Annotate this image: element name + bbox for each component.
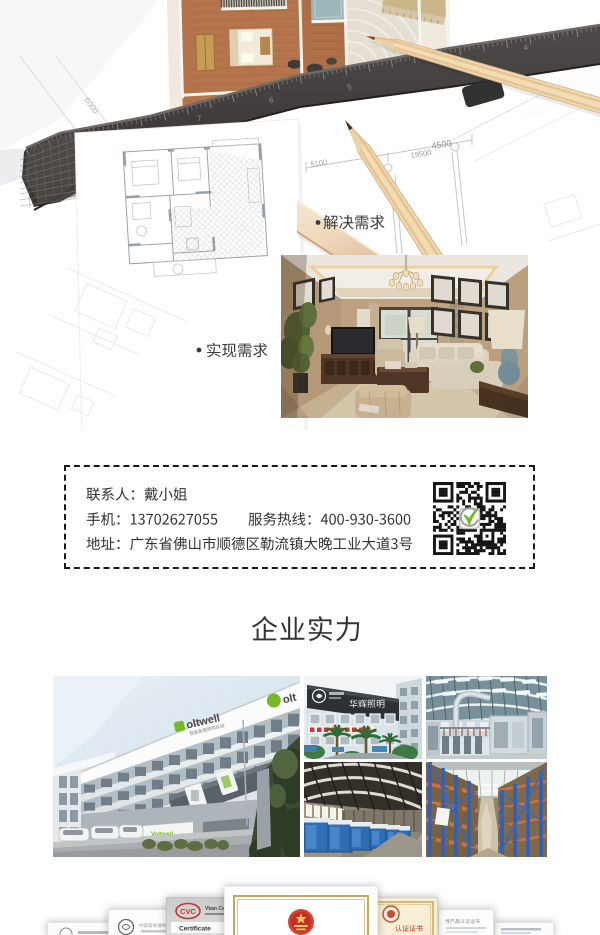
svg-text:Certificate: Certificate: [179, 926, 211, 933]
svg-text:CVC: CVC: [180, 907, 196, 916]
